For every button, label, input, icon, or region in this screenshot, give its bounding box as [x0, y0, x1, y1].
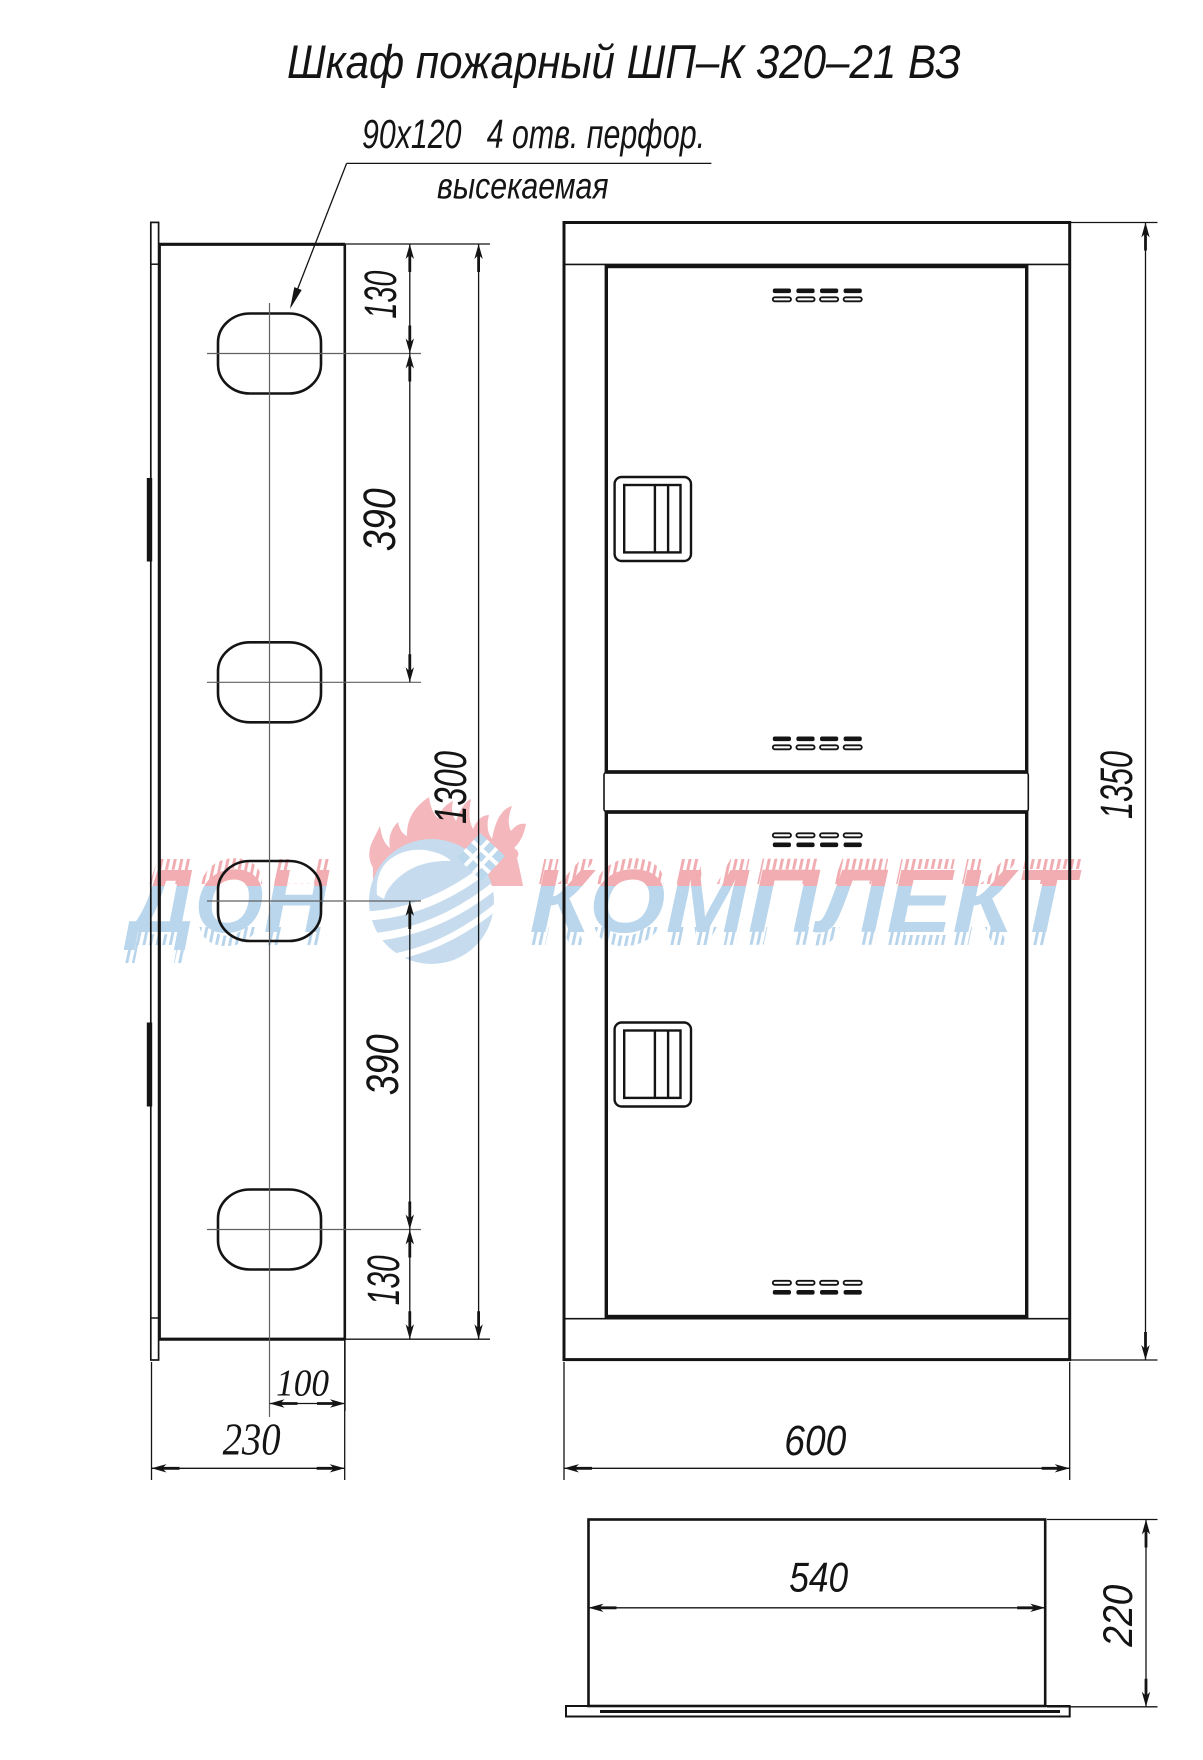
- svg-text:600: 600: [784, 1417, 846, 1465]
- svg-text:130: 130: [355, 271, 406, 319]
- svg-text:130: 130: [358, 1255, 409, 1305]
- svg-text:540: 540: [789, 1554, 849, 1601]
- svg-text:ДОН: ДОН: [123, 852, 330, 952]
- svg-text:высекаемая: высекаемая: [437, 166, 609, 207]
- svg-text:390: 390: [354, 488, 405, 551]
- svg-text:230: 230: [223, 1414, 281, 1465]
- svg-text:90х120 4 отв. перфор.: 90х120 4 отв. перфор.: [362, 111, 705, 157]
- svg-text:220: 220: [1094, 1584, 1141, 1647]
- svg-text:КОМПЛЕКТ: КОМПЛЕКТ: [530, 852, 1083, 952]
- svg-text:1350: 1350: [1091, 751, 1142, 819]
- svg-text:390: 390: [357, 1034, 408, 1095]
- svg-text:100: 100: [276, 1363, 329, 1405]
- svg-text:Шкаф пожарный ШП–К 320–21 ВЗ: Шкаф пожарный ШП–К 320–21 ВЗ: [287, 35, 961, 88]
- svg-text:1300: 1300: [425, 751, 476, 824]
